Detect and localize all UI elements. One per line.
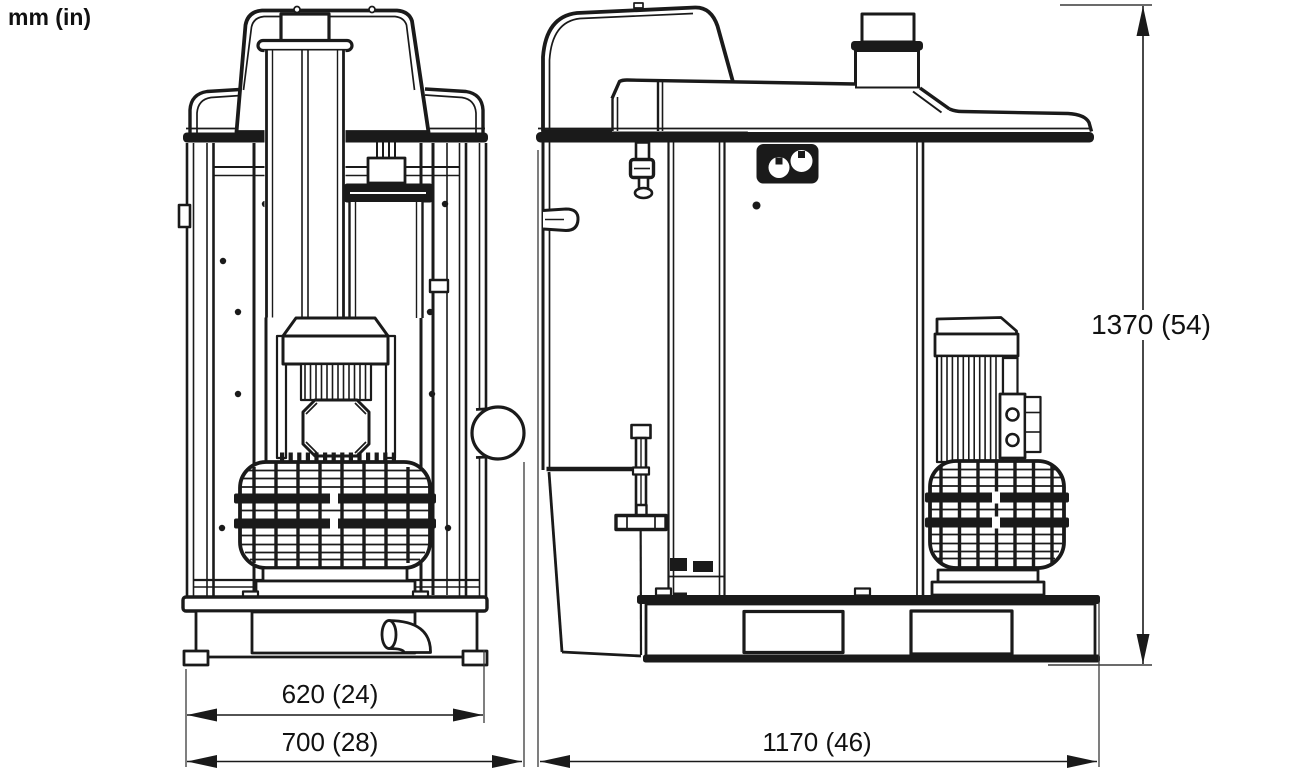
- dim-depth-1170: 1170 (46): [540, 727, 1097, 768]
- front-view: [179, 7, 524, 666]
- arrowhead-up: [1137, 6, 1150, 36]
- dim-label-1370: 1370 (54): [1091, 309, 1211, 340]
- front-pedestal: [256, 568, 415, 597]
- lid-clamp: [631, 143, 654, 199]
- dim-width-620: 620 (24): [187, 679, 483, 722]
- arrowhead-right: [492, 755, 522, 768]
- front-motor: [277, 318, 396, 461]
- dome-screw: [294, 7, 300, 13]
- arrowhead-right: [453, 709, 483, 722]
- post-clip: [430, 280, 448, 292]
- fork-pocket-left: [744, 612, 843, 653]
- exhaust-stack: [851, 14, 923, 88]
- inlet-pipe: [265, 51, 346, 318]
- side-body-panels: [543, 143, 923, 599]
- door-panel: [547, 469, 642, 656]
- dim-label-1170: 1170 (46): [762, 727, 871, 757]
- lid-rim-side: [536, 132, 1094, 143]
- dome-screw: [369, 7, 375, 13]
- side-tab: [179, 205, 190, 227]
- dome-inlet-port: [281, 14, 329, 41]
- front-base: [183, 592, 487, 666]
- bolt-hole: [753, 202, 761, 210]
- pipe-collar: [258, 41, 352, 51]
- units-label: mm (in): [8, 4, 91, 30]
- arrowhead-down: [1137, 634, 1150, 664]
- side-cover: [536, 80, 1094, 143]
- dim-label-620: 620 (24): [282, 679, 379, 709]
- machine-drawing: 620 (24) 700 (28) 1170 (46) 1370 (54) mm…: [0, 0, 1300, 772]
- lifting-handle: [543, 209, 578, 231]
- fork-pocket-right: [911, 611, 1012, 654]
- arrowhead-left: [187, 755, 217, 768]
- arrowhead-left: [187, 709, 217, 722]
- side-pedestal: [932, 570, 1044, 595]
- container-latch: [669, 558, 725, 598]
- dome-screw: [634, 3, 643, 8]
- side-filter-barrel: [925, 461, 1069, 568]
- dim-height-1370: 1370 (54): [1085, 6, 1217, 664]
- motor-bracket: [1025, 397, 1041, 452]
- fan-shroud: [303, 400, 369, 456]
- front-filter-barrel: [234, 462, 436, 568]
- control-panel: [757, 144, 819, 184]
- side-motor: [930, 314, 1042, 464]
- side-base: [637, 589, 1100, 663]
- arrowhead-left: [540, 755, 570, 768]
- dim-width-700: 700 (28): [187, 727, 522, 768]
- motor-terminal-box: [1000, 394, 1025, 458]
- door-lever: [616, 425, 666, 530]
- side-view: [536, 3, 1100, 663]
- technical-drawing-page: 620 (24) 700 (28) 1170 (46) 1370 (54) mm…: [0, 0, 1300, 772]
- hose-inlet-port: [472, 407, 524, 459]
- machine-foot: [184, 651, 208, 665]
- dim-label-700: 700 (28): [282, 727, 379, 757]
- arrowhead-right: [1067, 755, 1097, 768]
